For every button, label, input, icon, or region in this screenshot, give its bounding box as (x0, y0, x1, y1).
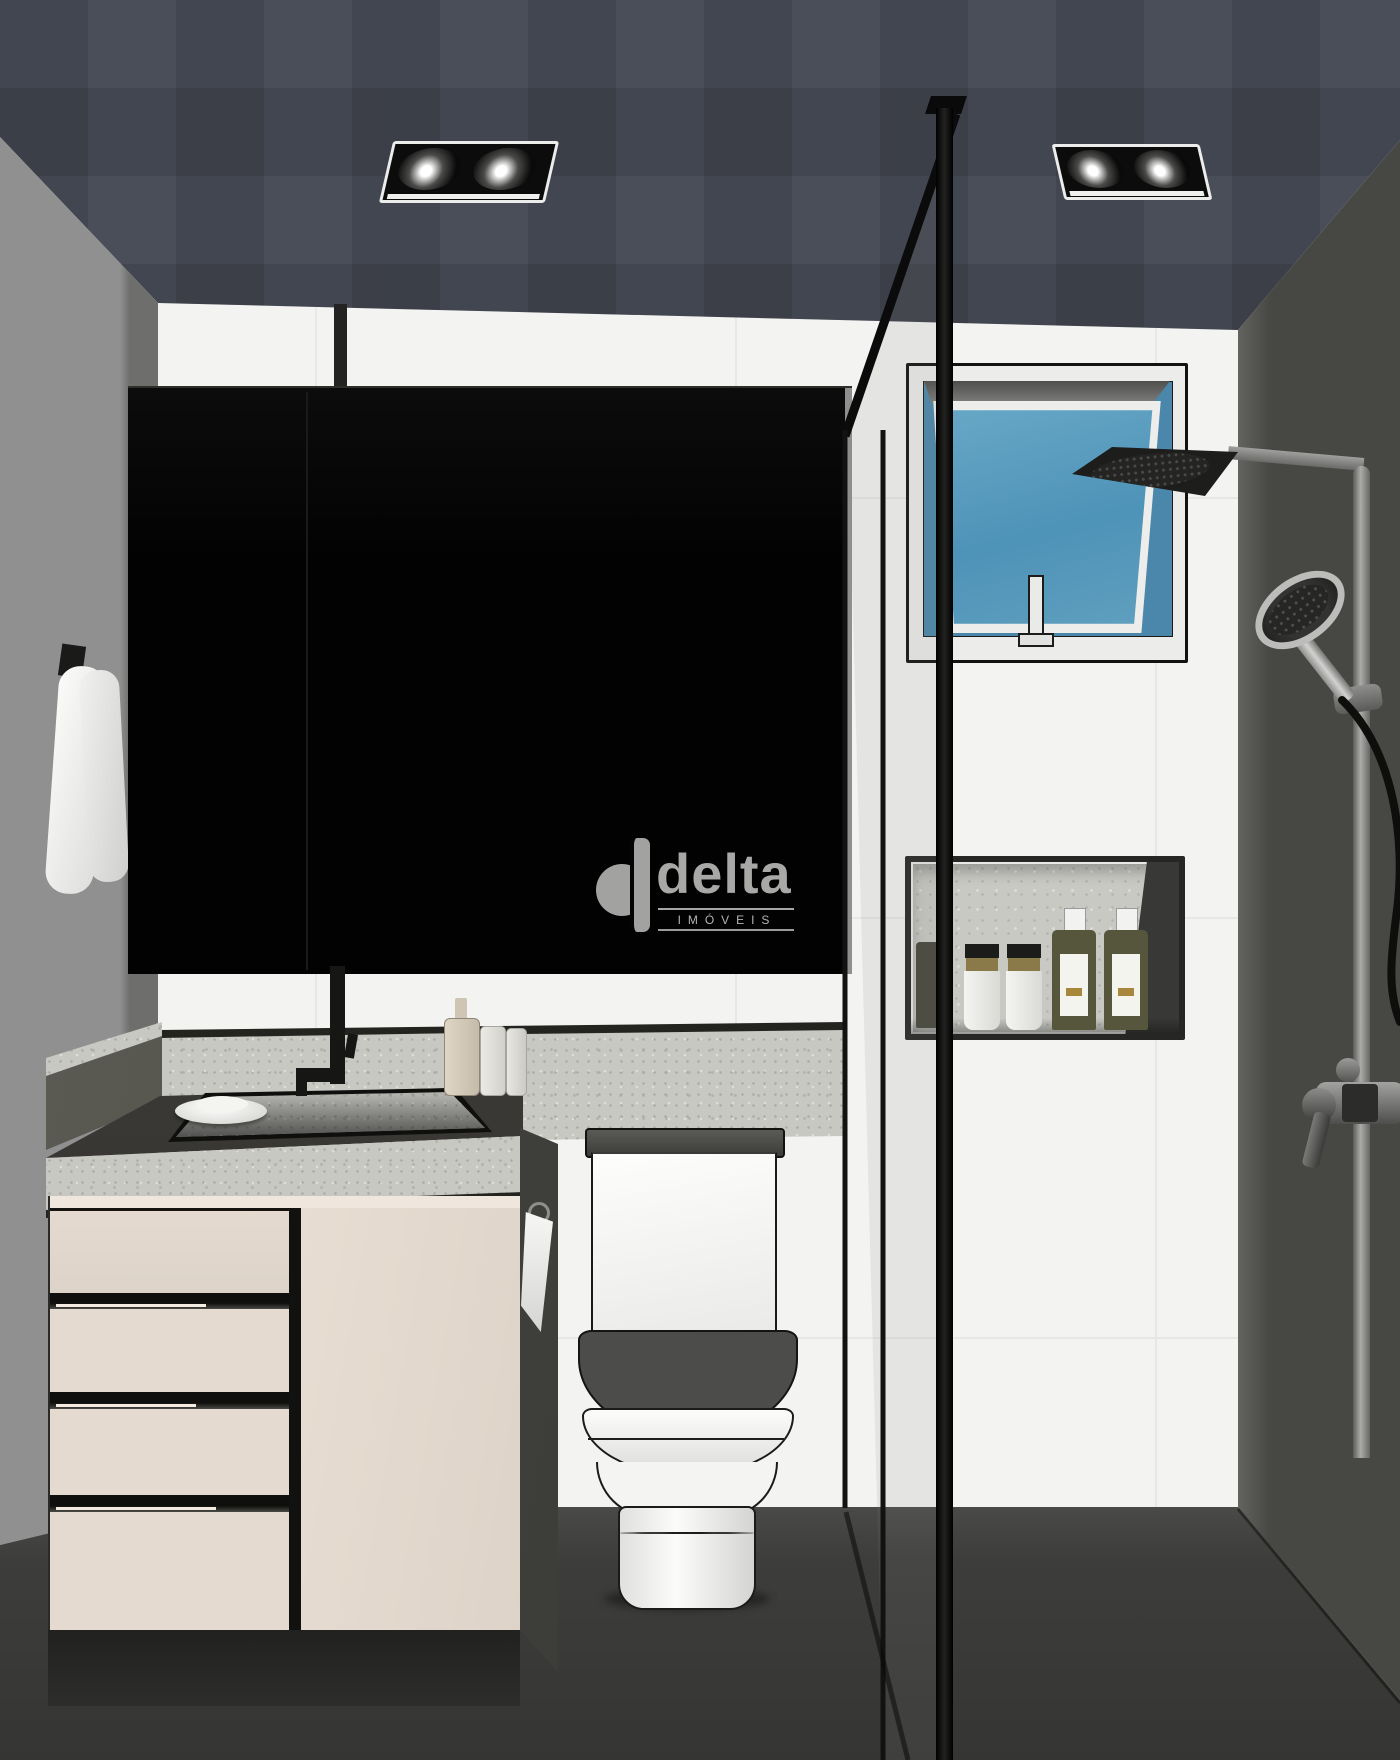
shower-hose (0, 0, 1400, 1760)
bathroom-render: delta IMÓVEIS (0, 0, 1400, 1760)
hose-path (1342, 700, 1400, 1022)
